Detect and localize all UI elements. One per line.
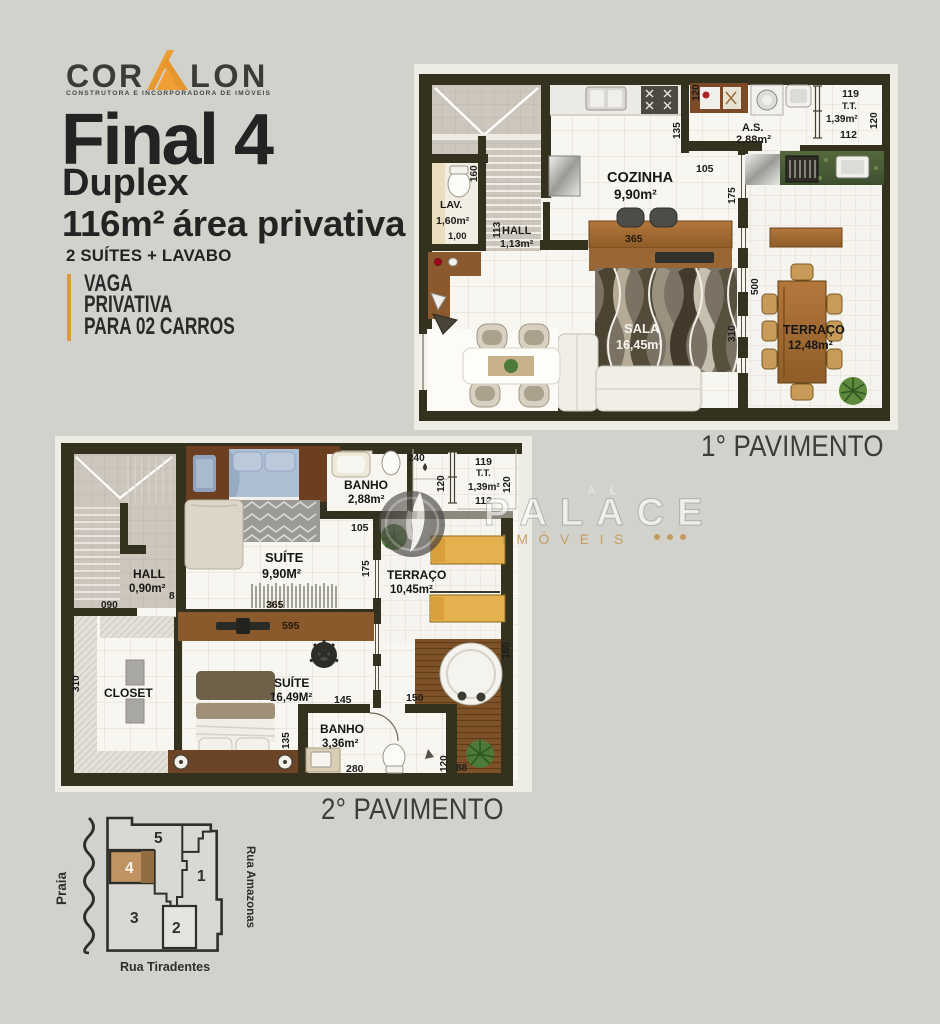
svg-text:120: 120 [869, 112, 880, 129]
svg-text:Rua Amazonas: Rua Amazonas [244, 846, 256, 928]
svg-text:9,90m²: 9,90m² [614, 187, 657, 202]
svg-text:2,88m²: 2,88m² [736, 134, 771, 146]
svg-text:TERRAÇO: TERRAÇO [783, 323, 845, 337]
svg-text:T.T.: T.T. [842, 101, 857, 112]
svg-text:4: 4 [125, 860, 134, 877]
svg-text:175: 175 [727, 187, 738, 204]
svg-text:365: 365 [625, 233, 643, 245]
svg-text:119: 119 [842, 88, 859, 100]
svg-text:12,48m²: 12,48m² [788, 338, 833, 352]
svg-text:IMÓVEIS: IMÓVEIS [502, 531, 634, 547]
svg-text:HALL: HALL [502, 225, 532, 237]
svg-text:120: 120 [691, 84, 702, 101]
svg-text:HALL: HALL [133, 567, 165, 581]
svg-text:88: 88 [456, 763, 468, 774]
svg-text:0,90m²: 0,90m² [129, 583, 166, 595]
svg-text:310: 310 [71, 675, 82, 692]
svg-text:150: 150 [406, 692, 424, 704]
svg-text:BANHO: BANHO [320, 722, 364, 736]
svg-text:2: 2 [172, 920, 181, 937]
svg-text:120: 120 [439, 755, 450, 772]
svg-text:10,45m²: 10,45m² [390, 584, 433, 596]
svg-text:160: 160 [469, 165, 480, 182]
svg-text:090: 090 [101, 600, 118, 611]
svg-text:3: 3 [130, 910, 139, 927]
svg-text:16,45m²: 16,45m² [616, 338, 663, 352]
svg-text:500: 500 [750, 278, 761, 295]
svg-text:1,60m²: 1,60m² [436, 215, 470, 227]
svg-text:1,13m²: 1,13m² [500, 238, 534, 250]
svg-text:SUÍTE: SUÍTE [274, 675, 309, 690]
svg-text:CLOSET: CLOSET [104, 686, 153, 700]
svg-text:135: 135 [672, 122, 683, 139]
svg-text:240: 240 [408, 453, 425, 464]
svg-text:105: 105 [351, 522, 369, 534]
svg-text:1: 1 [197, 868, 206, 885]
svg-text:1,39m²: 1,39m² [826, 114, 858, 125]
svg-text:1,00: 1,00 [448, 231, 467, 242]
svg-text:LAV.: LAV. [440, 199, 462, 211]
svg-text:Rua Tiradentes: Rua Tiradentes [120, 960, 210, 974]
svg-text:5: 5 [154, 830, 163, 847]
svg-text:595: 595 [282, 620, 300, 632]
svg-text:A L: A L [588, 485, 622, 497]
svg-text:3,36m²: 3,36m² [322, 738, 359, 750]
svg-text:145: 145 [334, 694, 352, 706]
svg-text:135: 135 [281, 732, 292, 749]
svg-text:PALACE: PALACE [484, 492, 715, 534]
svg-text:Praia: Praia [54, 871, 69, 905]
svg-text:TERRAÇO: TERRAÇO [387, 568, 446, 582]
svg-text:280: 280 [346, 763, 364, 775]
svg-text:310: 310 [727, 325, 738, 342]
svg-text:9,90M²: 9,90M² [262, 567, 301, 581]
svg-text:SALA: SALA [624, 321, 660, 336]
svg-text:16,49M²: 16,49M² [270, 692, 312, 704]
svg-text:T.T.: T.T. [476, 468, 491, 479]
svg-text:8: 8 [169, 591, 175, 602]
svg-text:113: 113 [492, 221, 503, 238]
svg-text:COZINHA: COZINHA [607, 170, 674, 186]
svg-text:A.S.: A.S. [742, 122, 763, 134]
svg-text:119: 119 [475, 456, 492, 468]
svg-text:112: 112 [840, 129, 857, 141]
svg-text:150: 150 [501, 642, 512, 659]
svg-text:105: 105 [696, 163, 714, 175]
svg-text:365: 365 [266, 599, 284, 611]
svg-text:SUÍTE: SUÍTE [265, 550, 304, 565]
